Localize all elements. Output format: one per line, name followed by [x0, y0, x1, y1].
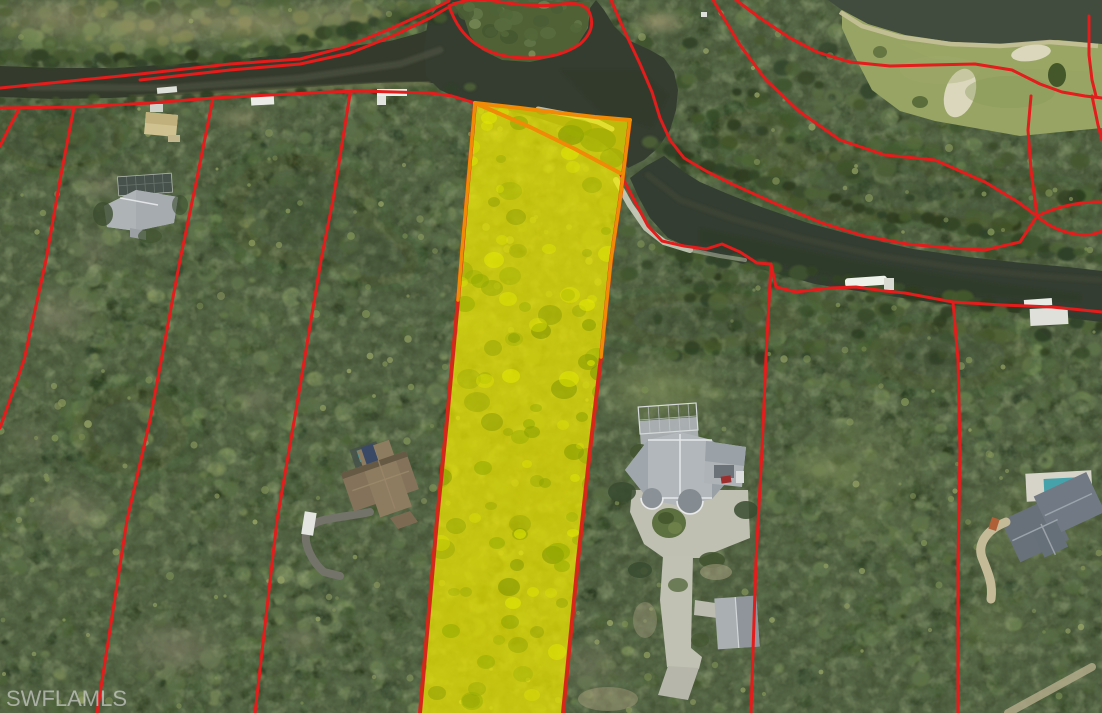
svg-text:SWFLAMLS: SWFLAMLS	[6, 686, 127, 711]
